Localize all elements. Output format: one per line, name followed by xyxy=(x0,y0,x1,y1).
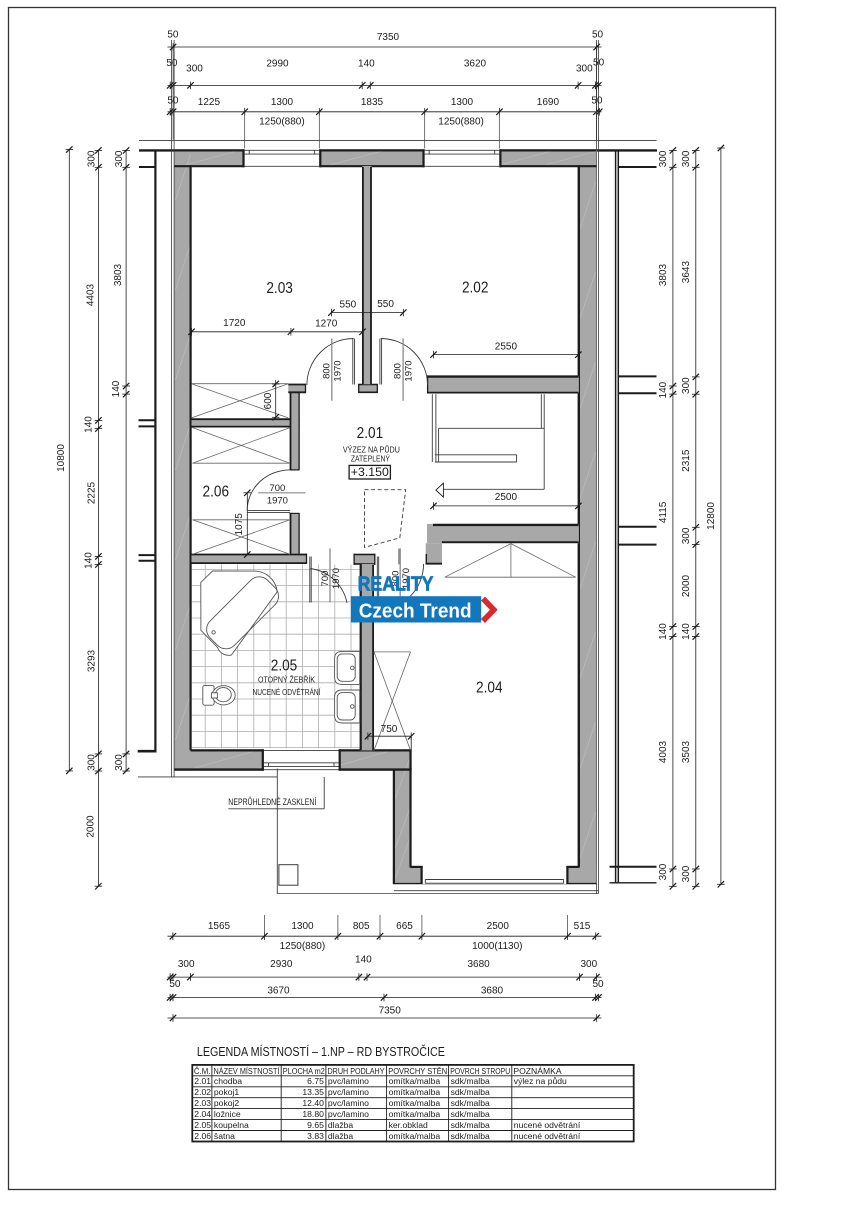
svg-text:3803: 3803 xyxy=(658,263,669,286)
svg-text:3620: 3620 xyxy=(464,59,487,70)
svg-text:1720: 1720 xyxy=(223,318,246,329)
svg-text:2000: 2000 xyxy=(681,574,692,597)
svg-text:300: 300 xyxy=(114,150,125,167)
svg-text:2.06: 2.06 xyxy=(194,1131,211,1141)
svg-text:50: 50 xyxy=(593,57,605,68)
svg-text:140: 140 xyxy=(658,381,669,398)
svg-text:2.04: 2.04 xyxy=(476,679,503,696)
svg-text:1970: 1970 xyxy=(267,495,288,506)
svg-text:omítka/malba: omítka/malba xyxy=(389,1098,441,1108)
svg-text:50: 50 xyxy=(592,29,604,40)
svg-text:300: 300 xyxy=(114,754,125,771)
svg-text:600: 600 xyxy=(263,392,274,409)
svg-text:DRUH PODLAHY: DRUH PODLAHY xyxy=(328,1066,385,1076)
svg-text:13.35: 13.35 xyxy=(302,1087,324,1097)
svg-text:6.75: 6.75 xyxy=(307,1076,324,1086)
svg-text:1300: 1300 xyxy=(271,97,294,108)
svg-text:dlažba: dlažba xyxy=(328,1131,354,1141)
svg-text:1300: 1300 xyxy=(291,921,314,932)
svg-text:1225: 1225 xyxy=(198,97,221,108)
svg-text:12.40: 12.40 xyxy=(302,1098,324,1108)
svg-text:NUCENÉ ODVĚTRÁNÍ: NUCENÉ ODVĚTRÁNÍ xyxy=(253,688,322,697)
svg-text:3503: 3503 xyxy=(681,740,692,763)
svg-text:140: 140 xyxy=(681,623,692,640)
svg-text:POVRCH STROPU: POVRCH STROPU xyxy=(450,1066,510,1076)
svg-text:300: 300 xyxy=(658,863,669,880)
svg-text:2.02: 2.02 xyxy=(194,1087,211,1097)
svg-text:POVRCHY STĚN: POVRCHY STĚN xyxy=(388,1066,447,1076)
svg-text:ložnice: ložnice xyxy=(214,1109,241,1119)
svg-text:pvc/lamino: pvc/lamino xyxy=(328,1109,369,1119)
svg-text:pvc/lamino: pvc/lamino xyxy=(328,1098,369,1108)
svg-text:300: 300 xyxy=(186,63,203,74)
svg-text:300: 300 xyxy=(576,63,593,74)
svg-text:VÝZEZ NA PŮDU: VÝZEZ NA PŮDU xyxy=(343,445,400,454)
svg-text:PLOCHA m2: PLOCHA m2 xyxy=(283,1066,325,1076)
svg-text:+3.150: +3.150 xyxy=(351,465,389,479)
svg-text:chodba: chodba xyxy=(214,1076,242,1086)
svg-text:koupelna: koupelna xyxy=(214,1120,249,1130)
svg-text:50: 50 xyxy=(169,979,181,990)
svg-text:2500: 2500 xyxy=(487,921,510,932)
svg-text:pvc/lamino: pvc/lamino xyxy=(328,1087,369,1097)
svg-text:omítka/malba: omítka/malba xyxy=(389,1131,441,1141)
svg-text:10800: 10800 xyxy=(56,444,67,472)
svg-text:300: 300 xyxy=(87,754,98,771)
svg-text:2.03: 2.03 xyxy=(266,280,293,297)
svg-text:sdk/malba: sdk/malba xyxy=(451,1098,490,1108)
svg-text:550: 550 xyxy=(377,299,394,310)
svg-text:300: 300 xyxy=(681,150,692,167)
svg-text:300: 300 xyxy=(681,377,692,394)
svg-text:140: 140 xyxy=(358,58,375,69)
svg-text:pokoj2: pokoj2 xyxy=(214,1098,240,1108)
svg-text:140: 140 xyxy=(111,380,122,397)
svg-text:REALITY: REALITY xyxy=(358,573,434,596)
svg-text:omítka/malba: omítka/malba xyxy=(389,1087,441,1097)
svg-text:2.05: 2.05 xyxy=(194,1120,211,1130)
svg-text:1075: 1075 xyxy=(234,513,245,536)
svg-text:2.04: 2.04 xyxy=(194,1109,211,1119)
svg-text:3680: 3680 xyxy=(467,959,490,970)
svg-text:Czech Trend: Czech Trend xyxy=(359,601,472,623)
svg-text:omítka/malba: omítka/malba xyxy=(389,1076,441,1086)
svg-text:omítka/malba: omítka/malba xyxy=(389,1109,441,1119)
svg-text:750: 750 xyxy=(381,724,398,735)
svg-text:550: 550 xyxy=(340,299,357,310)
svg-text:7350: 7350 xyxy=(377,32,400,43)
svg-text:800: 800 xyxy=(321,363,332,379)
svg-text:2.06: 2.06 xyxy=(203,483,230,500)
svg-text:nucené odvětrání: nucené odvětrání xyxy=(514,1131,581,1141)
svg-text:2.01: 2.01 xyxy=(194,1076,211,1086)
svg-text:3.83: 3.83 xyxy=(307,1131,324,1141)
svg-text:výlez na půdu: výlez na půdu xyxy=(514,1076,567,1086)
svg-text:sdk/malba: sdk/malba xyxy=(451,1087,490,1097)
svg-text:800: 800 xyxy=(393,363,404,379)
svg-text:2.03: 2.03 xyxy=(194,1098,211,1108)
svg-text:pokoj1: pokoj1 xyxy=(214,1087,240,1097)
svg-text:805: 805 xyxy=(353,921,370,932)
svg-text:2990: 2990 xyxy=(266,59,289,70)
svg-text:šatna: šatna xyxy=(214,1131,235,1141)
svg-text:1835: 1835 xyxy=(361,97,384,108)
svg-text:300: 300 xyxy=(681,865,692,882)
svg-text:4003: 4003 xyxy=(658,740,669,763)
svg-text:2315: 2315 xyxy=(681,449,692,472)
svg-text:2930: 2930 xyxy=(270,959,293,970)
svg-text:7350: 7350 xyxy=(379,1005,402,1016)
svg-text:9.65: 9.65 xyxy=(307,1120,324,1130)
svg-text:515: 515 xyxy=(574,921,591,932)
svg-text:665: 665 xyxy=(396,921,413,932)
svg-text:nucené odvětrání: nucené odvětrání xyxy=(514,1120,581,1130)
svg-text:3643: 3643 xyxy=(681,261,692,284)
svg-text:3670: 3670 xyxy=(267,986,290,997)
svg-text:OTOPNÝ ŽEBŘÍK: OTOPNÝ ŽEBŘÍK xyxy=(258,675,316,684)
svg-text:2.01: 2.01 xyxy=(357,425,384,442)
svg-text:300: 300 xyxy=(658,150,669,167)
svg-text:50: 50 xyxy=(166,58,178,69)
svg-text:300: 300 xyxy=(178,959,195,970)
svg-text:sdk/malba: sdk/malba xyxy=(451,1076,490,1086)
svg-text:50: 50 xyxy=(591,95,603,106)
svg-text:pvc/lamino: pvc/lamino xyxy=(328,1076,369,1086)
svg-text:sdk/malba: sdk/malba xyxy=(451,1131,490,1141)
svg-text:dlažba: dlažba xyxy=(328,1120,354,1130)
svg-text:140: 140 xyxy=(84,552,95,569)
svg-text:1250(880): 1250(880) xyxy=(259,116,305,127)
svg-text:140: 140 xyxy=(355,955,372,966)
svg-text:300: 300 xyxy=(681,527,692,544)
svg-text:1300: 1300 xyxy=(451,97,474,108)
svg-text:2550: 2550 xyxy=(495,341,518,352)
svg-text:POZNÁMKA: POZNÁMKA xyxy=(513,1066,561,1076)
svg-text:50: 50 xyxy=(592,979,604,990)
svg-text:4403: 4403 xyxy=(86,283,97,306)
svg-text:1970: 1970 xyxy=(331,568,342,589)
svg-text:140: 140 xyxy=(84,416,95,433)
svg-text:sdk/malba: sdk/malba xyxy=(451,1120,490,1130)
svg-text:12800: 12800 xyxy=(706,502,717,530)
svg-text:2000: 2000 xyxy=(86,815,97,838)
svg-text:1250(880): 1250(880) xyxy=(280,941,326,952)
svg-text:1000(1130): 1000(1130) xyxy=(472,941,522,952)
svg-text:1970: 1970 xyxy=(332,360,343,381)
svg-text:ZATEPLENÝ: ZATEPLENÝ xyxy=(351,454,391,463)
svg-text:1690: 1690 xyxy=(537,97,560,108)
svg-text:300: 300 xyxy=(87,150,98,167)
svg-text:1270: 1270 xyxy=(315,318,338,329)
svg-text:50: 50 xyxy=(167,29,179,40)
svg-text:sdk/malba: sdk/malba xyxy=(451,1109,490,1119)
svg-text:ker.obklad: ker.obklad xyxy=(389,1120,428,1130)
svg-text:3803: 3803 xyxy=(113,263,124,286)
svg-text:1970: 1970 xyxy=(404,360,415,381)
svg-text:4115: 4115 xyxy=(658,501,669,523)
svg-text:LEGENDA MÍSTNOSTÍ – 1.NP –: LEGENDA MÍSTNOSTÍ – 1.NP – RD BYSTROČICE xyxy=(197,1044,445,1059)
svg-text:3293: 3293 xyxy=(87,649,98,672)
svg-text:1565: 1565 xyxy=(208,921,231,932)
svg-text:NEPRŮHLEDNÉ ZASKLENÍ: NEPRŮHLEDNÉ ZASKLENÍ xyxy=(228,796,316,808)
svg-text:700: 700 xyxy=(320,571,331,587)
svg-text:2.05: 2.05 xyxy=(271,658,298,675)
svg-text:300: 300 xyxy=(580,959,597,970)
svg-text:NÁZEV MÍSTNOSTÍ: NÁZEV MÍSTNOSTÍ xyxy=(214,1066,281,1076)
svg-text:2.02: 2.02 xyxy=(462,280,489,297)
svg-text:140: 140 xyxy=(658,623,669,640)
svg-text:2225: 2225 xyxy=(87,481,98,504)
svg-text:1250(880): 1250(880) xyxy=(438,116,484,127)
svg-text:3680: 3680 xyxy=(481,986,504,997)
svg-text:2500: 2500 xyxy=(495,492,518,503)
svg-text:18.80: 18.80 xyxy=(302,1109,324,1119)
svg-text:Č.M.: Č.M. xyxy=(194,1066,211,1076)
